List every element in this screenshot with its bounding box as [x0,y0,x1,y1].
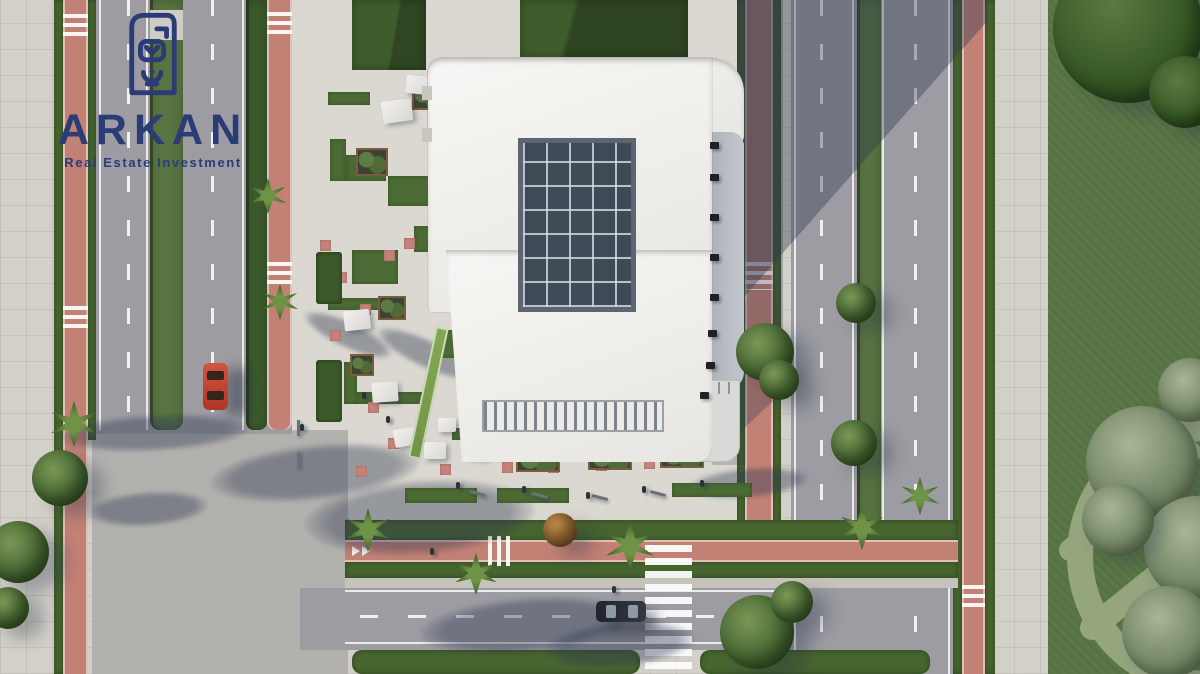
hedge-block [316,252,342,304]
dark-car [596,601,646,622]
pedestrian [362,392,366,399]
pedestrian [700,480,704,487]
grass-patch [328,92,370,105]
balcony-furniture [710,142,719,149]
grass-block [520,0,688,57]
car-rear-window [207,391,224,400]
car-windshield [207,371,224,380]
umbrella-canopy [371,381,398,403]
balcony-furniture [710,214,719,221]
grass-patch [388,176,432,206]
crosswalk [962,585,985,607]
pink-paver-square [404,238,415,249]
crosswalk [63,306,88,332]
red-car [203,363,228,410]
tree [543,513,577,547]
pink-paver-square [440,464,451,475]
pedestrian [522,486,526,493]
balcony-furniture [706,362,715,369]
lane-line [345,590,775,592]
tree [771,581,813,623]
grass-patch [497,488,569,503]
planter-box [378,296,406,320]
balcony-furniture [710,254,719,261]
pink-paver-square [356,466,367,477]
hedge-strip [985,0,995,674]
pedestrian [456,482,460,489]
pedestrian [386,416,390,423]
grass-block [352,0,426,70]
pink-paver-square [368,402,379,413]
facade-notch [422,86,432,100]
balcony-furniture [700,392,709,399]
pedestrian [586,492,590,499]
entrance-canopy-louvers [482,400,664,432]
balcony-furniture [710,294,719,301]
arkan-logo: ARKAN Real Estate Investment [38,8,268,170]
arkan-logo-mark-icon [124,8,182,100]
bench [297,452,300,468]
crosswalk [267,12,292,36]
hedge-block [316,360,342,422]
skylight [518,138,636,312]
balcony-furniture [708,330,717,337]
brand-tagline: Real Estate Investment [38,155,268,170]
cycle-lane-left-east [267,0,292,430]
car-windshield [606,605,616,618]
planter-box [350,354,374,376]
car-rear-window [628,605,638,618]
umbrella-canopy [343,309,371,332]
grass-patch [405,488,477,503]
tree [1082,484,1154,556]
pink-paver-square [384,250,395,261]
tree [32,450,88,506]
pink-paver-square [502,462,513,473]
pedestrian [300,424,304,431]
tree [759,360,799,400]
umbrella-canopy [424,442,446,459]
aerial-render: ARKAN Real Estate Investment [0,0,1200,674]
pink-paver-square [330,330,341,341]
grass-patch [330,139,346,181]
tree [831,420,877,466]
tree [836,283,876,323]
umbrella-canopy [438,418,456,432]
crosswalk [267,262,292,288]
brand-name: ARKAN [38,109,268,152]
pedestrian [612,586,616,593]
cycle-lane-far-right [962,0,985,674]
umbrella-canopy [381,98,414,124]
balcony-furniture [710,174,719,181]
facade-notch [422,128,432,142]
pedestrian [430,548,434,555]
grass-patch [672,483,752,497]
planter-box [356,148,388,176]
pedestrian [642,486,646,493]
pink-paver-square [320,240,331,251]
